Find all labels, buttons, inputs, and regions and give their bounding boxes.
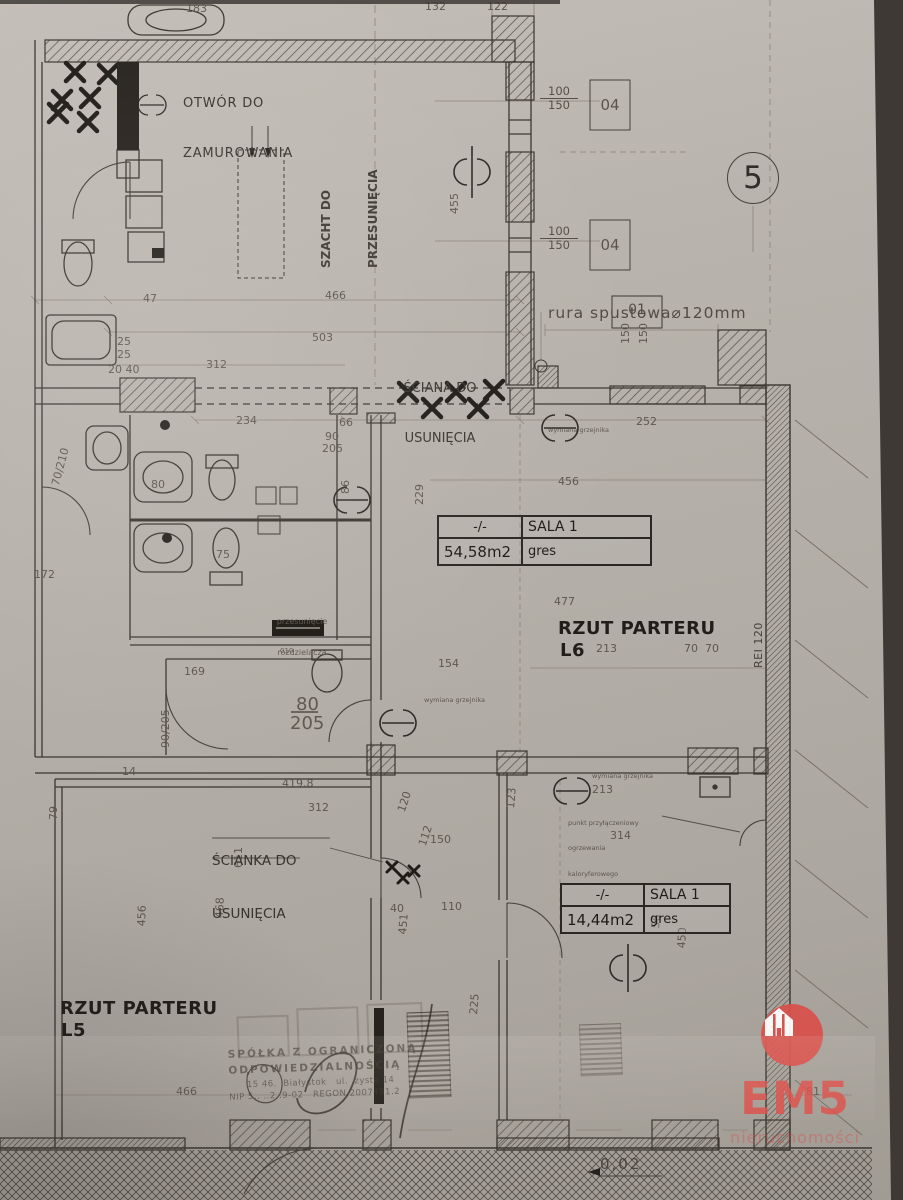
paper-sheet: 18313212245547466503312252520 4023466252… — [0, 0, 903, 1200]
dim-label: 90 — [325, 431, 339, 442]
dim-label: 70/210 — [50, 447, 71, 487]
dim-label: 312 — [308, 802, 329, 813]
dim-label: 456 — [558, 476, 579, 487]
window-dim-2-top: 100 — [548, 224, 570, 238]
dim-label: 120 — [396, 790, 413, 813]
window-dim-1: 100 150 — [540, 85, 578, 112]
note-szacht: SZACHT DO PRZESUNIĘCIA — [288, 169, 413, 268]
dim-label: 503 — [312, 332, 333, 343]
dim-label: 213 — [596, 643, 617, 654]
dim-label: 25 — [117, 336, 131, 347]
stamp-dense-block — [406, 1011, 451, 1098]
dim-label: 252 — [636, 416, 657, 427]
house-icon — [761, 1004, 797, 1040]
dim-label: 86 — [340, 480, 351, 494]
window-tag-2: 04 — [590, 236, 630, 254]
dim-label: 466 — [325, 290, 346, 301]
title-l6-line2: L6 — [560, 640, 585, 661]
note-szacht-line2: PRZESUNIĘCIA — [366, 169, 382, 268]
dim-label: 80 — [151, 479, 165, 490]
note-sciana: ŚCIANA DO USUNIĘCIA — [395, 347, 485, 482]
dim-label: 213 — [592, 784, 613, 795]
dim-label: 312 — [206, 359, 227, 370]
dim-label: 75 — [216, 549, 230, 560]
dim-label: 110 — [441, 901, 462, 912]
window-dim-2: 100 150 — [540, 225, 578, 252]
dim-label: 477 — [554, 596, 575, 607]
company-stamp: SPÓŁKA Z OGRANICZONĄ ODPOWIEDZIALNOŚCIĄ … — [226, 995, 620, 1119]
note-grzejnik-3: wymiana grzejnika — [424, 696, 485, 704]
dim-label: 183 — [186, 3, 207, 14]
note-punkt-line2: ogrzewania — [568, 844, 639, 852]
note-grzejnik-1: wymiana grzejnika — [548, 426, 609, 434]
room-table-cell: SALA 1 — [523, 517, 650, 539]
note-otwor-line2: ZAMUROWANIA — [183, 146, 293, 163]
note-przesuniecie: przesunięcie rozdzielacza — [270, 596, 334, 679]
stamp-dense-block — [579, 1023, 623, 1076]
dim-label: 172 — [34, 569, 55, 580]
dim-label: 66 — [339, 417, 353, 428]
dim-label: 205 — [322, 443, 343, 454]
room-table-cell: gres — [645, 907, 729, 932]
dim-label: 205 — [290, 715, 324, 733]
dim-label: 14 — [122, 766, 136, 777]
section-marker-number: 5 — [743, 160, 763, 196]
room-table-sala1-large: -/- SALA 1 54,58m2 gres — [437, 515, 652, 566]
photo-of-floorplan: 18313212245547466503312252520 4023466252… — [0, 0, 903, 1200]
dim-label: 419,8 — [282, 778, 314, 789]
dim-label: 123 — [505, 787, 518, 809]
dim-label: 455 — [449, 193, 460, 214]
title-l5-line1: RZUT PARTERU — [60, 998, 218, 1019]
dim-label: 451 — [397, 913, 410, 935]
note-sciana-line1: ŚCIANA DO — [395, 381, 485, 398]
window-dim-1-top: 100 — [548, 84, 570, 98]
window-dim-1-bottom: 150 — [540, 98, 578, 112]
note-otwor: OTWÓR DO ZAMUROWANIA — [183, 62, 293, 197]
dim-label: 154 — [438, 658, 459, 669]
room-table-cell: -/- — [439, 517, 523, 539]
dim-label: 234 — [236, 415, 257, 426]
room-table-cell: gres — [523, 539, 650, 564]
note-grzejnik-2: wymiana grzejnika — [592, 772, 653, 780]
em5-logo-circle — [761, 1004, 823, 1066]
slope-label: 0,02 — [600, 1155, 641, 1175]
dim-label: 79 — [48, 806, 59, 820]
note-scianka: ŚCIANKA DO USUNIĘCIA — [212, 818, 296, 958]
dim-label: 20 40 — [108, 364, 140, 375]
room-table-cell: 54,58m2 — [439, 539, 523, 564]
note-punkt-line3: kaloryferowego — [568, 870, 639, 878]
dim-label: 80 — [296, 696, 319, 714]
backdrop-top-edge — [0, 0, 560, 4]
window-dim-2-bottom: 150 — [540, 238, 578, 252]
section-marker-5: 5 — [727, 152, 779, 204]
note-punkt-line1: punkt przyłączeniowy — [568, 819, 639, 827]
em5-logo-subtitle: nieruchomości — [728, 1128, 862, 1147]
note-sciana-line2: USUNIĘCIA — [395, 431, 485, 448]
room-table-cell: 14,44m2 — [562, 907, 645, 932]
rura-tag: 01 — [612, 301, 662, 319]
note-otwor-line1: OTWÓR DO — [183, 96, 293, 113]
dim-label: 466 — [176, 1086, 197, 1097]
note-scianka-line1: ŚCIANKA DO — [212, 853, 296, 871]
title-l6-line1: RZUT PARTERU — [558, 618, 716, 639]
dim-label: 150 — [620, 323, 631, 344]
dim-label: 90/205 — [160, 709, 171, 748]
dim-label: 229 — [414, 484, 425, 505]
title-l5-line2: L5 — [61, 1020, 86, 1041]
note-szacht-line1: SZACHT DO — [319, 169, 335, 268]
note-punkt: punkt przyłączeniowy ogrzewania kaloryfe… — [568, 802, 639, 895]
dim-label: 456 — [136, 905, 148, 926]
note-przesuniecie-line2: rozdzielacza — [270, 648, 334, 658]
dim-label: 70 70 — [684, 643, 719, 654]
dim-label: 25 — [117, 349, 131, 360]
stamp-line2: ODPOWIEDZIALNOŚCIĄ — [228, 1059, 401, 1077]
note-przesuniecie-line1: przesunięcie — [270, 617, 334, 627]
dim-label: 169 — [184, 666, 205, 677]
window-tag-1: 04 — [590, 96, 630, 114]
em5-logo-text: EM5 — [728, 1076, 862, 1121]
dim-label: 47 — [143, 293, 157, 304]
dim-label: 150 — [638, 323, 649, 344]
rei-label: REI 120 — [752, 622, 766, 668]
note-scianka-line2: USUNIĘCIA — [212, 906, 296, 924]
dim-label: 150 — [430, 834, 451, 845]
room-table-cell: SALA 1 — [645, 885, 729, 907]
